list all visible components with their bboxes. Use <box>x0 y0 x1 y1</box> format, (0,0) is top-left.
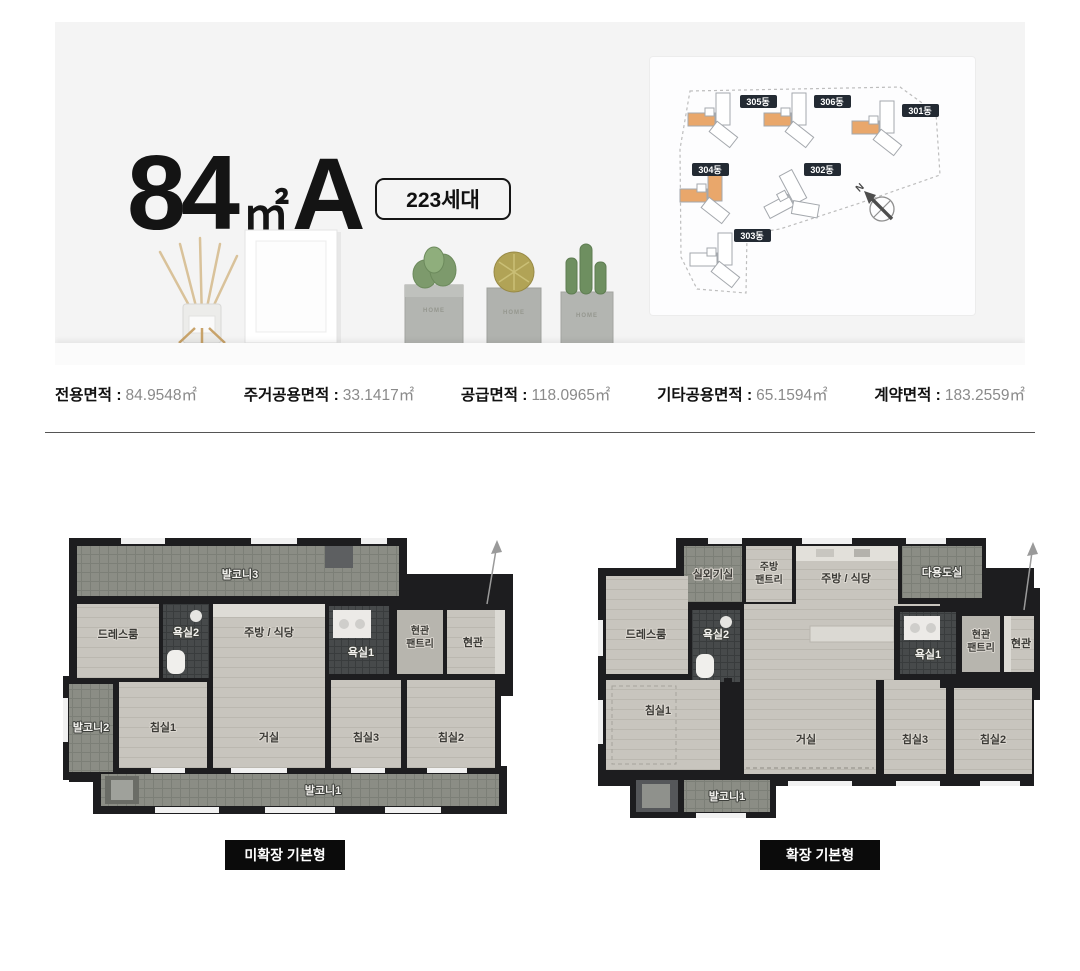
spec-value: 118.0965㎡ <box>531 387 610 404</box>
column-cactus-pot-decor: HOME <box>561 244 613 345</box>
room-bedroom1-floor <box>606 680 720 770</box>
entry-arrow-head <box>491 540 502 554</box>
photo-frame-decor <box>245 230 341 345</box>
basin <box>926 623 936 633</box>
room-entry-pantry-label2: 팬트리 <box>406 637 434 650</box>
building-label: 305동 <box>746 97 769 107</box>
building-label: 304동 <box>698 165 721 175</box>
unexpanded-plan-button[interactable]: 미확장 기본형 <box>225 840 345 870</box>
toilet-fixture <box>696 654 714 678</box>
floor-plan-unexpanded: 발코니3 드레스룸 욕실2 주방 / 식당 욕실1 현관 팬트리 현관 발코니2… <box>55 528 520 830</box>
kitchen-counter <box>213 604 325 617</box>
room-balcony3-label: 발코니3 <box>222 567 258 581</box>
room-bedroom3-label: 침실3 <box>353 730 379 744</box>
hero-decor: HOME HOME HOME <box>95 222 655 345</box>
room-kitchen-pantry-label1: 주방 <box>760 560 779 573</box>
entry-arrow-head <box>1027 542 1038 556</box>
expanded-plan-button-label: 확장 기본형 <box>786 845 854 865</box>
spec-label: 주거공용면적 : <box>244 387 339 404</box>
site-plan-card: 305동 306동 <box>650 57 975 315</box>
site-building-302: 302동 <box>755 163 841 238</box>
site-plan-map: 305동 306동 <box>650 57 975 315</box>
balcony-storage-inner <box>111 780 133 800</box>
room-dressroom-label: 드레스룸 <box>98 627 138 641</box>
room-bath2-label: 욕실2 <box>173 625 199 639</box>
room-bedroom3-floor <box>884 688 946 774</box>
room-balcony1-label: 발코니1 <box>709 789 745 803</box>
spec-label: 계약면적 : <box>874 387 941 404</box>
spec-other-common-area: 기타공용면적 :65.1594㎡ <box>657 383 828 405</box>
building-label: 302동 <box>810 165 833 175</box>
room-bath1-label: 욕실1 <box>915 647 941 661</box>
spec-label: 기타공용면적 : <box>657 387 752 404</box>
basin <box>910 623 920 633</box>
area-specs-row: 전용면적 :84.9548㎡ 주거공용면적 :33.1417㎡ 공급면적 :11… <box>55 383 1025 405</box>
room-living-label: 거실 <box>259 730 279 744</box>
shelf <box>55 343 1025 365</box>
basin <box>355 619 365 629</box>
site-building-301: 301동 <box>852 101 939 156</box>
building-label: 303동 <box>740 231 763 241</box>
households-badge-label: 223세대 <box>406 184 480 214</box>
room-dressroom-label: 드레스룸 <box>626 627 666 641</box>
site-building-306: 306동 <box>764 93 851 148</box>
shoe-cabinet <box>495 610 505 674</box>
room-balcony1-label: 발코니1 <box>305 783 341 797</box>
households-badge: 223세대 <box>375 178 511 220</box>
unexpanded-plan-button-label: 미확장 기본형 <box>244 845 325 865</box>
spec-value: 65.1594㎡ <box>756 387 828 404</box>
diffuser-decor <box>160 238 237 343</box>
spec-value: 183.2559㎡ <box>945 387 1025 404</box>
kitchen-stove <box>854 549 870 557</box>
room-kitchen-pantry-label2: 팬트리 <box>755 573 783 586</box>
room-dressroom-floor <box>77 604 159 678</box>
wall-stub <box>946 680 954 776</box>
room-kitchen-pantry-floor <box>746 546 792 602</box>
room-living-label: 거실 <box>796 732 816 746</box>
site-building-303: 303동 <box>690 229 771 288</box>
kitchen-island <box>810 626 894 642</box>
kitchen-sink <box>816 549 834 557</box>
bath1-sink-counter <box>333 610 371 638</box>
building-label: 306동 <box>820 97 843 107</box>
spec-supply-area: 공급면적 :118.0965㎡ <box>461 383 611 405</box>
ac-unit-box <box>325 546 353 568</box>
succulent-pot-decor: HOME <box>405 247 463 345</box>
room-bedroom1-label: 침실1 <box>645 703 671 717</box>
room-bedroom2-floor <box>407 680 495 768</box>
pot-home-label: HOME <box>503 310 525 316</box>
wall-stub <box>876 680 884 776</box>
floor-plan-expanded: 실외기실 주방 팬트리 주방 / 식당 다용도실 드레스룸 욕실2 욕실1 현관… <box>588 530 1043 830</box>
pot-home-label: HOME <box>576 313 598 319</box>
pot-home-label: HOME <box>423 308 445 314</box>
sink-fixture <box>190 610 202 622</box>
room-bedroom3-label: 침실3 <box>902 732 928 746</box>
room-entry-pantry-label1: 현관 <box>411 624 430 637</box>
room-ac-unit-label: 실외기실 <box>693 567 733 581</box>
spec-value: 84.9548㎡ <box>126 387 198 404</box>
spec-value: 33.1417㎡ <box>343 387 415 404</box>
room-dressroom-floor <box>606 576 688 674</box>
room-entry-label: 현관 <box>463 635 483 649</box>
section-divider <box>45 432 1035 433</box>
room-utility-label: 다용도실 <box>922 565 962 579</box>
room-bedroom2-label: 침실2 <box>980 732 1006 746</box>
building-label: 301동 <box>908 106 931 116</box>
sink-fixture <box>720 616 732 628</box>
room-bedroom2-floor <box>954 688 1032 774</box>
room-entry-label: 현관 <box>1011 636 1031 650</box>
room-bath1-label: 욕실1 <box>348 645 374 659</box>
room-kitchen-label: 주방 / 식당 <box>244 625 294 639</box>
wall-stub <box>724 678 732 776</box>
spec-label: 전용면적 : <box>55 387 122 404</box>
compass-icon: N <box>854 182 894 221</box>
room-bedroom2-label: 침실2 <box>438 730 464 744</box>
room-bath2-label: 욕실2 <box>703 627 729 641</box>
room-bedroom3-floor <box>331 680 401 768</box>
room-kitchen-label: 주방 / 식당 <box>821 571 871 585</box>
balcony-storage-inner <box>642 784 670 808</box>
hero-banner: 84 ㎡ A 223세대 HOME <box>55 22 1025 365</box>
spec-exclusive-area: 전용면적 :84.9548㎡ <box>55 383 197 405</box>
spec-contract-area: 계약면적 :183.2559㎡ <box>874 383 1025 405</box>
ball-cactus-pot-decor: HOME <box>487 252 541 345</box>
room-balcony2-label: 발코니2 <box>73 720 109 734</box>
site-building-304: 304동 <box>680 163 730 224</box>
room-entry-pantry-label2: 팬트리 <box>967 641 995 654</box>
spec-residential-common-area: 주거공용면적 :33.1417㎡ <box>244 383 415 405</box>
room-balcony1-floor <box>101 774 499 806</box>
expanded-plan-button[interactable]: 확장 기본형 <box>760 840 880 870</box>
toilet-fixture <box>167 650 185 674</box>
basin <box>339 619 349 629</box>
spec-label: 공급면적 : <box>461 387 528 404</box>
kitchen-counter <box>796 546 898 561</box>
room-bedroom1-label: 침실1 <box>150 720 176 734</box>
room-entry-pantry-label1: 현관 <box>972 628 991 641</box>
